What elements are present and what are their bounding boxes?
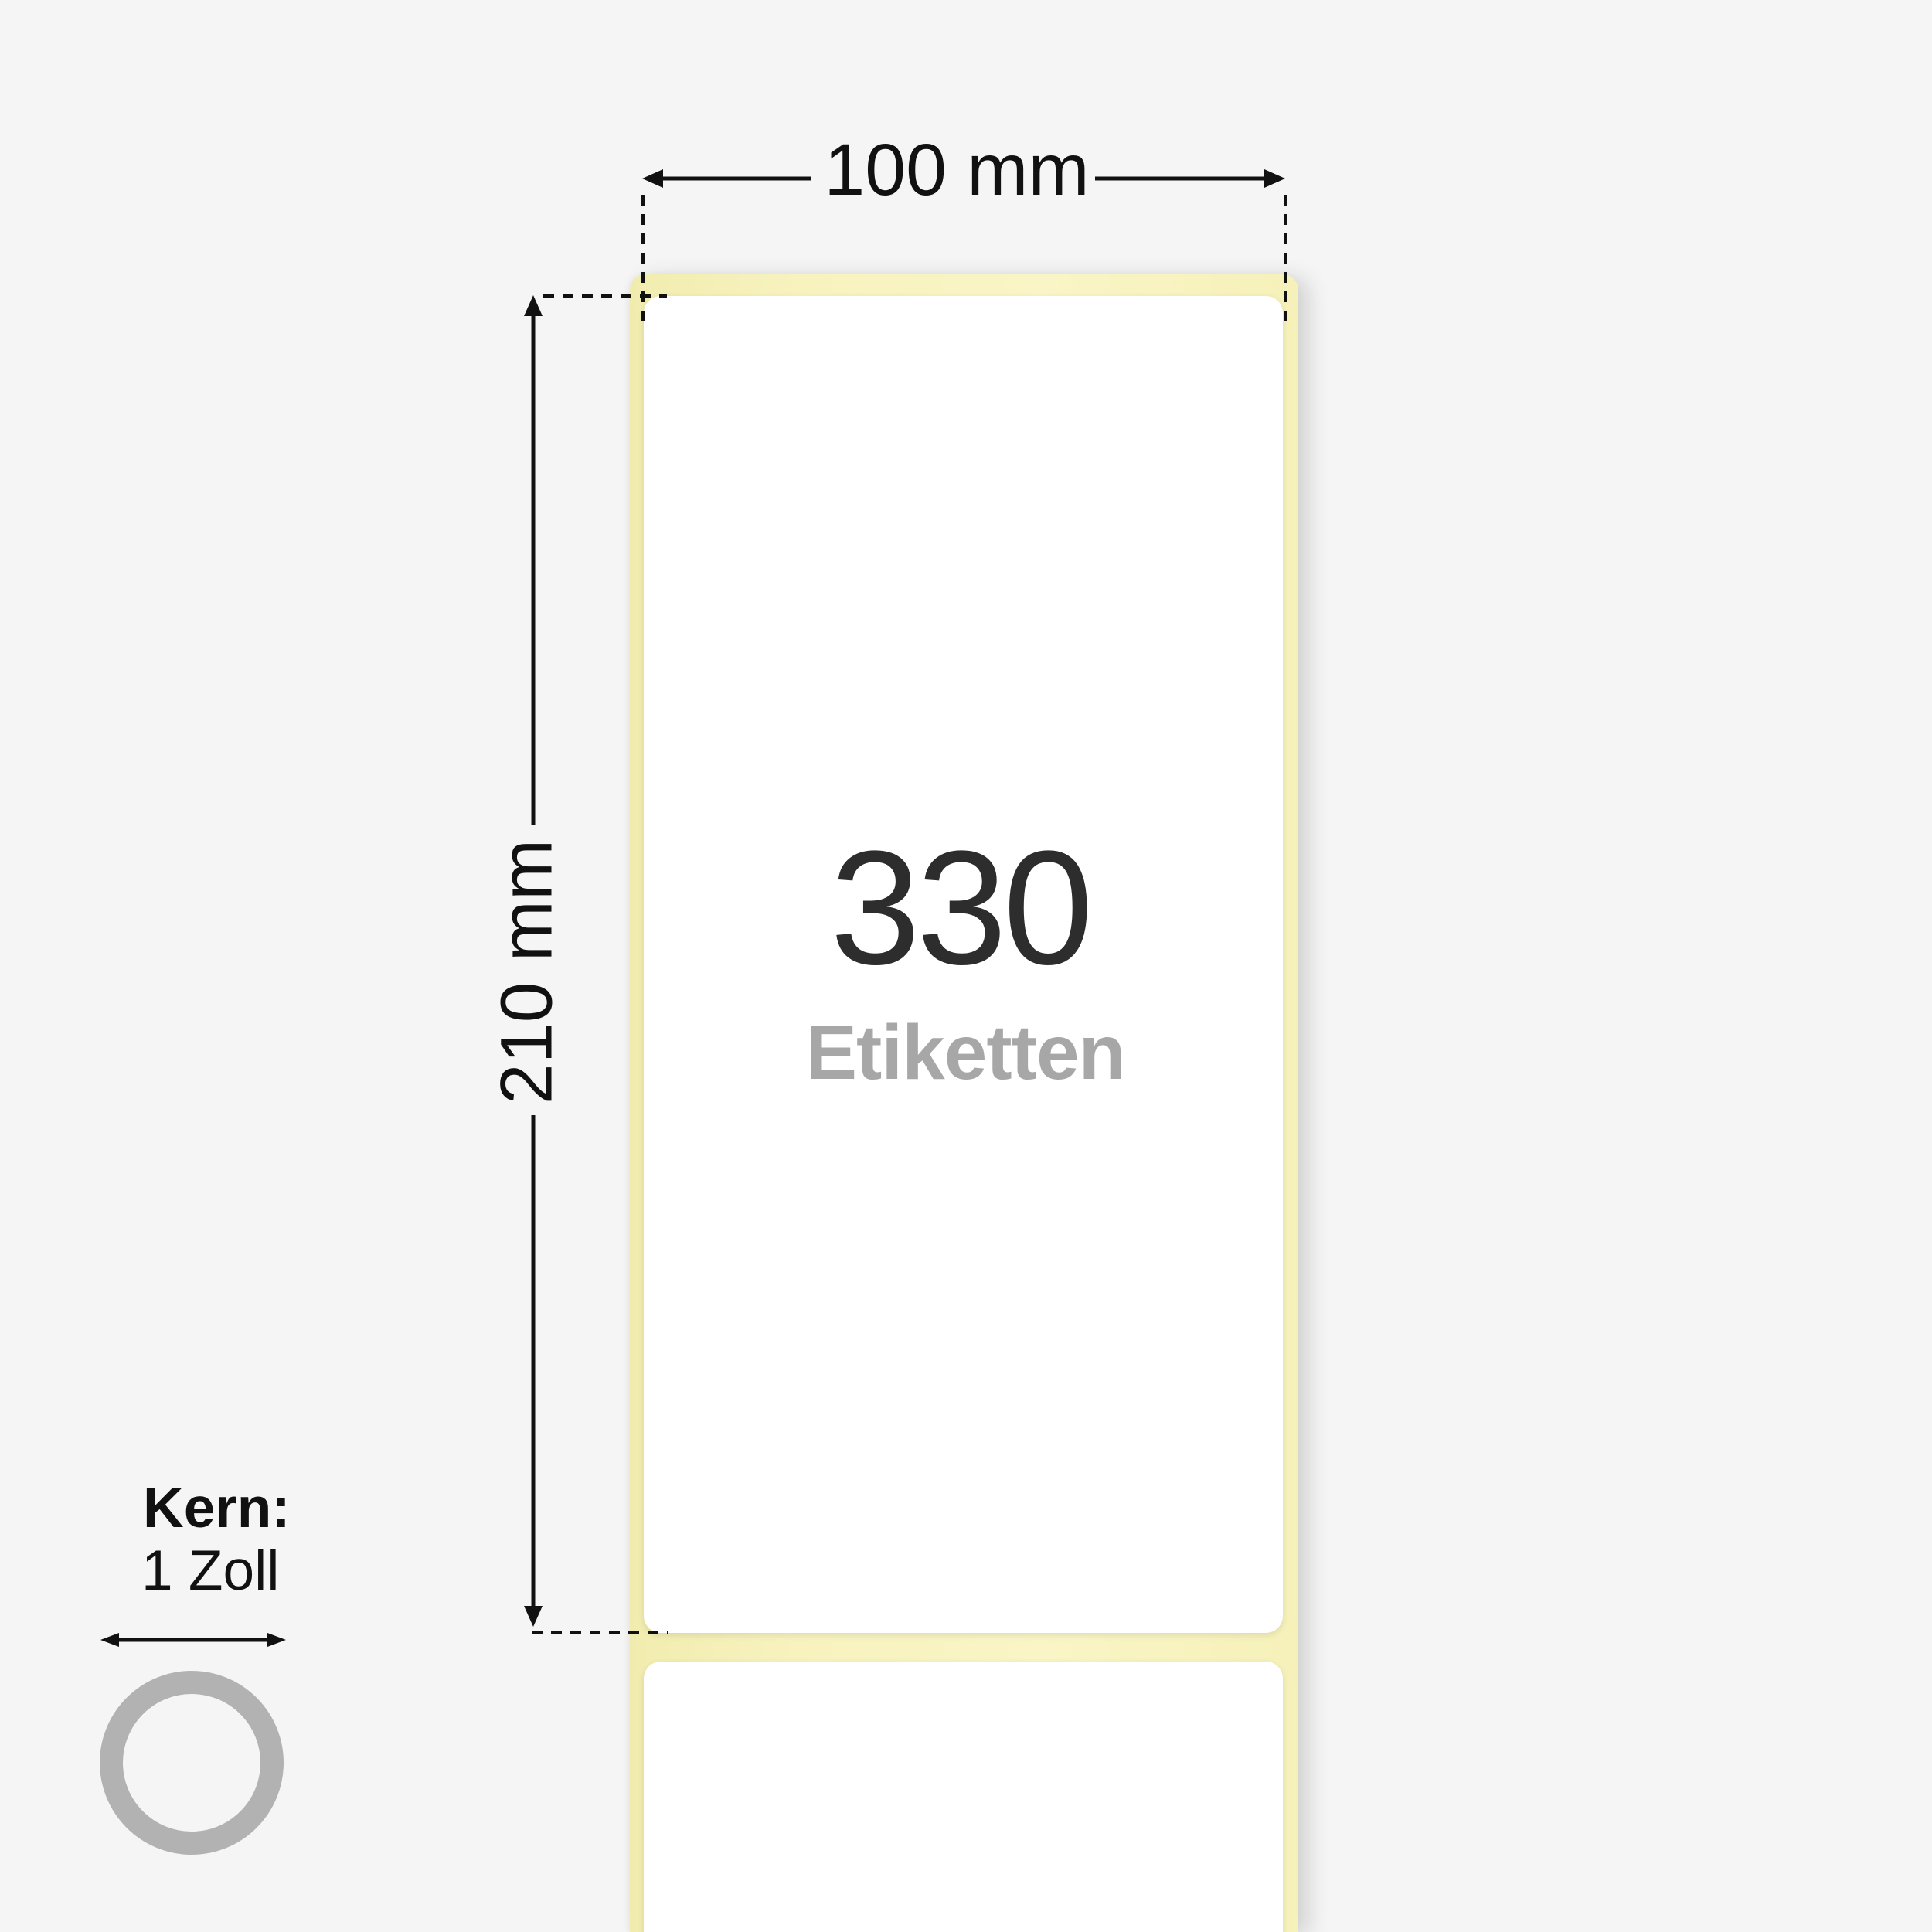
core-ring-icon <box>111 1682 272 1843</box>
height-dim-arrowhead-bottom <box>524 1606 543 1627</box>
label-count: 330 <box>651 827 1269 989</box>
width-dimension-label: 100 mm <box>648 134 1266 207</box>
core-diameter-arrowhead-left <box>100 1633 119 1647</box>
core-heading: Kern: <box>143 1480 291 1536</box>
blank-label-bottom <box>644 1662 1283 1932</box>
width-dim-arrowhead-right <box>1264 169 1285 188</box>
core-diameter-arrowhead-right <box>267 1633 286 1647</box>
product-diagram-canvas: 100 mm 210 mm 330 Etiketten Kern: 1 Zoll <box>0 0 1932 1932</box>
label-count-unit: Etiketten <box>656 1014 1274 1091</box>
height-dim-arrowhead-top <box>524 295 543 316</box>
core-value: 1 Zoll <box>141 1543 280 1599</box>
height-dimension-label: 210 mm <box>491 663 564 1281</box>
